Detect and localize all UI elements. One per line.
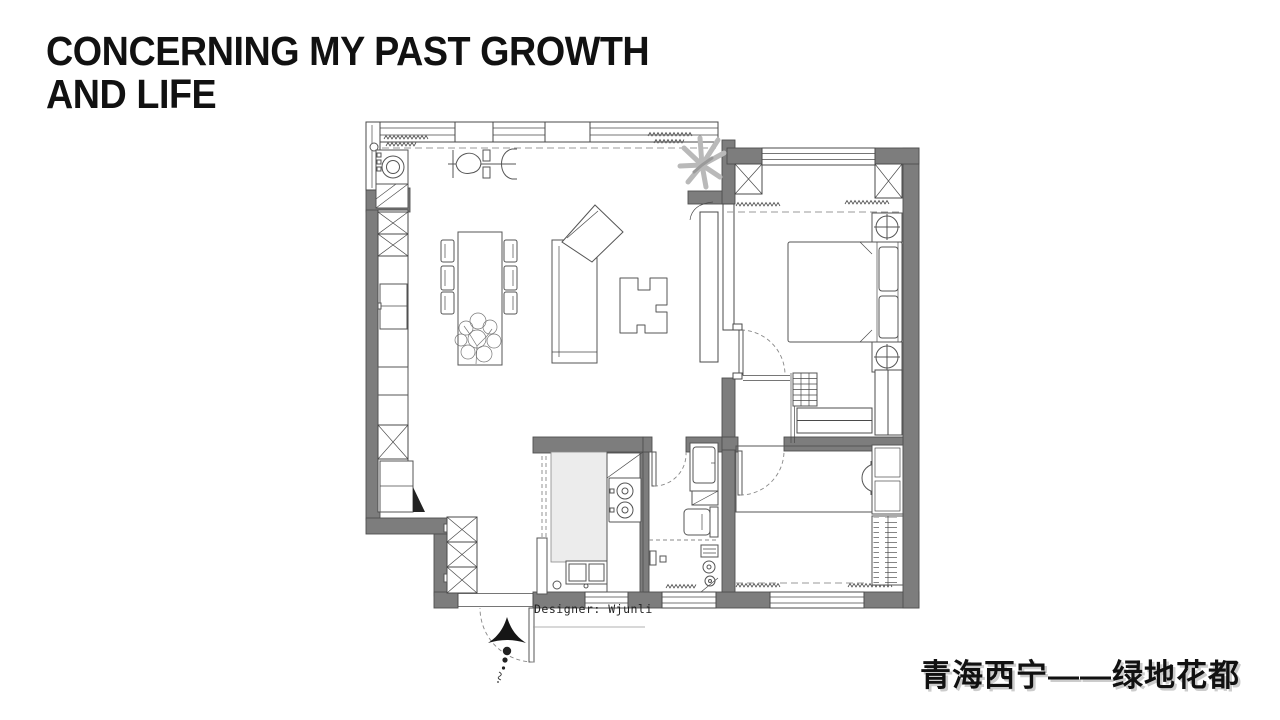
dining-set — [441, 232, 517, 365]
master-bedroom — [743, 213, 902, 443]
north-arrow-icon — [488, 617, 526, 683]
mirror-wardrobe — [872, 445, 903, 514]
wall-fixture — [650, 551, 656, 565]
laundry-corner — [370, 143, 408, 208]
nightstand-lamp — [872, 342, 902, 372]
designer-note: Designer: Wjunli — [534, 602, 653, 616]
corner-cabinet — [380, 461, 425, 512]
master-window — [762, 148, 875, 165]
master-door-swing — [733, 324, 785, 379]
puzzle-coffee-table — [620, 278, 667, 333]
pillow — [879, 247, 898, 291]
bathroom-window — [662, 592, 716, 608]
location-caption: 青海西宁——绿地花都 — [920, 650, 1240, 695]
slatted-shelf — [872, 516, 903, 585]
kitchen-sink-icon — [566, 561, 607, 588]
hanging-rail-icon — [797, 408, 872, 433]
washing-machine-icon — [376, 150, 408, 184]
living-window-band — [378, 122, 718, 142]
nightstand-lamp — [872, 213, 902, 242]
bedroom2-window — [770, 592, 864, 608]
wall-fixture — [660, 556, 666, 562]
pillow — [879, 296, 898, 338]
bedroom2-door-swing — [738, 451, 784, 495]
toilet-icon — [684, 507, 718, 537]
bathroom — [649, 443, 718, 592]
structural-columns — [735, 164, 902, 198]
kitchen-sliding-door — [537, 456, 547, 594]
fridge — [378, 284, 407, 329]
hanging-rail-icon — [875, 370, 902, 435]
shoe-cabinet — [444, 517, 477, 593]
desk — [736, 446, 872, 512]
floor-drain-icon — [553, 581, 561, 589]
entry-threshold — [458, 594, 533, 607]
shower-icon — [701, 545, 718, 592]
pendant-lamp-icon — [448, 149, 517, 179]
closet-grid-icon — [793, 373, 817, 406]
bedroom2 — [736, 445, 903, 585]
double-bed — [788, 242, 902, 342]
decor-plant-icon — [680, 138, 724, 187]
bathroom-door-swing — [652, 452, 686, 486]
corner-sofa — [552, 205, 623, 363]
vanity-icon — [690, 443, 718, 505]
walk-in-closet — [743, 370, 902, 443]
kitchen — [537, 452, 643, 594]
tv-panel — [690, 202, 718, 362]
kitchen-island — [551, 452, 607, 562]
gas-stove-icon — [609, 478, 641, 522]
